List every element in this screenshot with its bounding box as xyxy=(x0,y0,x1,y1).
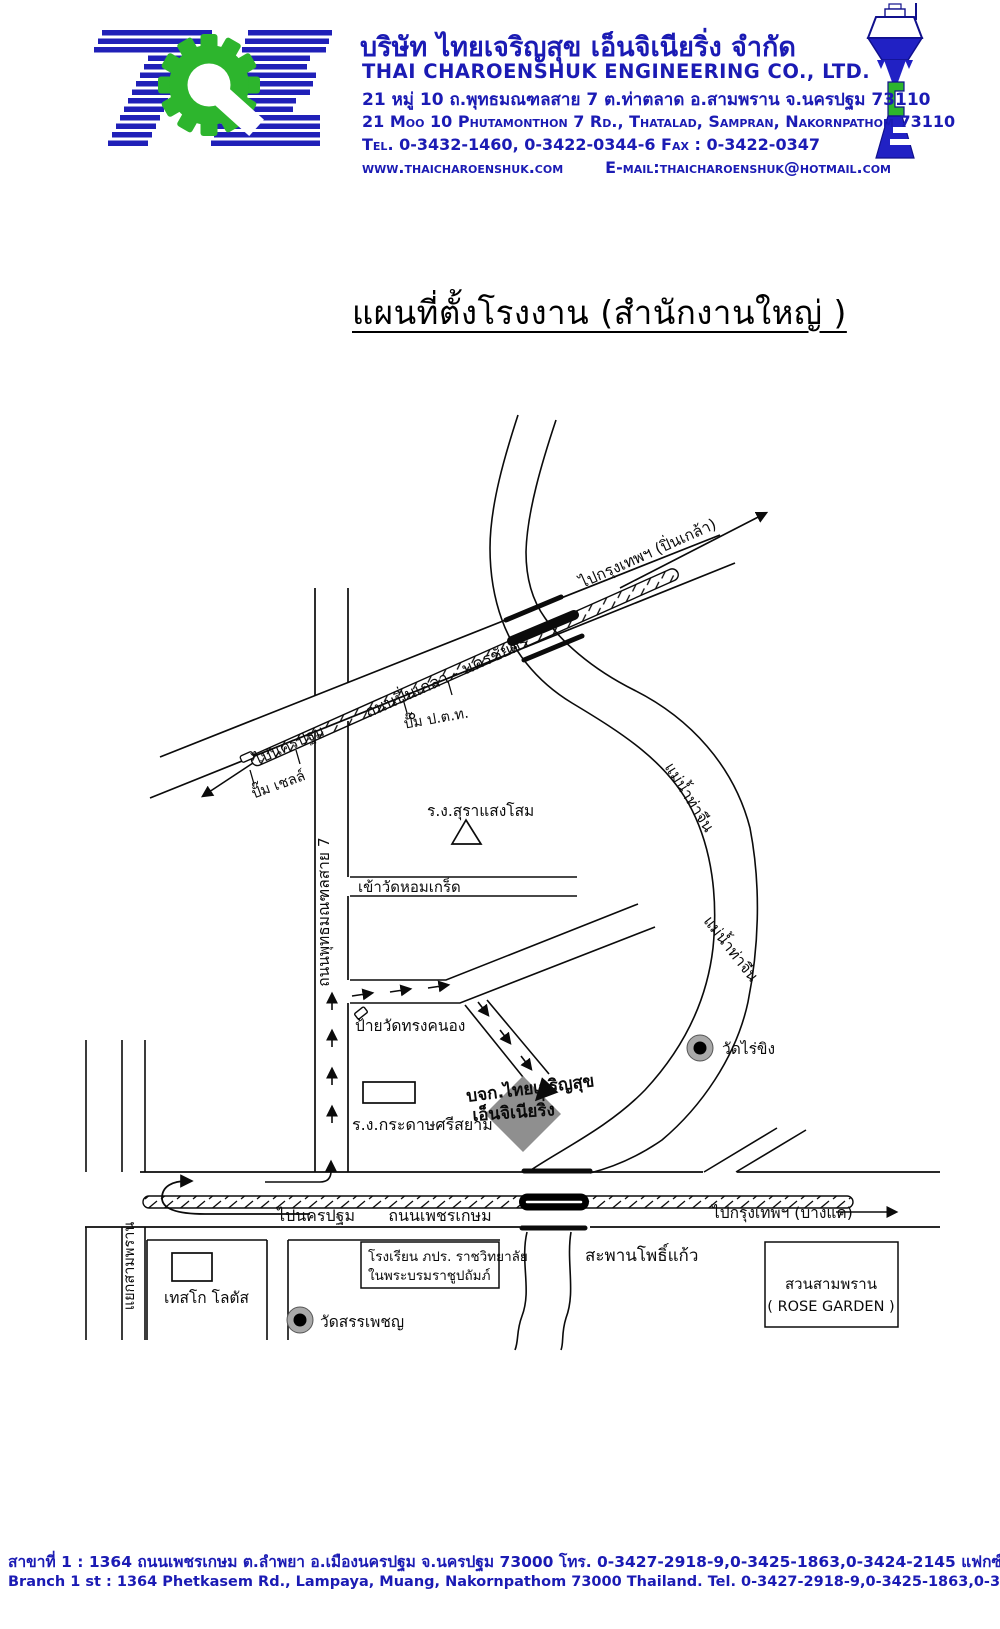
label-rose-garden-en: ( ROSE GARDEN ) xyxy=(767,1299,894,1315)
landmark-triangle-icon xyxy=(452,820,481,844)
label-shell-station: ปั๊ม เชลล์ xyxy=(248,764,307,802)
label-sangsom-distillery: ร.ง.สุราแสงโสม xyxy=(427,802,534,821)
label-ptt-station: ปั๊ม ป.ต.ท. xyxy=(402,702,470,733)
label-river-thachin-lower: แม่น้ำท่าจีน xyxy=(700,911,765,986)
footer-branch-en: Branch 1 st : 1364 Phetkasem Rd., Lampay… xyxy=(8,1574,1000,1590)
side-streets xyxy=(86,1040,500,1340)
label-wat-sanphet: วัดสรรเพชญ xyxy=(320,1313,404,1331)
location-map: แม่น้ำท่าจีน แม่น้ำท่าจีน xyxy=(0,380,1000,1365)
label-rose-garden-th: สวนสามพราน xyxy=(785,1275,877,1293)
label-wat-raikhing: วัดไร่ขิง xyxy=(722,1040,775,1058)
wat-sanphet-marker-icon xyxy=(287,1307,313,1333)
label-tesco-lotus: เทสโก โลตัส xyxy=(164,1289,250,1307)
document-page: บริษัท ไทยเจริญสุข เอ็นจิเนียริ่ง จำกัด … xyxy=(0,0,1000,1629)
tesco-lotus-marker xyxy=(172,1253,212,1281)
footer-branch-th: สาขาที่ 1 : 1364 ถนนเพชรเกษม ต.ลำพยา อ.เ… xyxy=(8,1549,1000,1574)
company-address-th: 21 หมู่ 10 ถ.พุทธมณฑลสาย 7 ต.ท่าตลาด อ.ส… xyxy=(362,86,931,113)
company-tel-fax: Tel. 0-3432-1460, 0-3422-0344-6 Fax : 0-… xyxy=(362,135,820,154)
label-paper-factory: ร.ง.กระดาษศรีสยาม xyxy=(352,1115,493,1134)
paper-factory-marker xyxy=(363,1082,415,1103)
water-tower-icon xyxy=(860,0,932,170)
company-web-email: www.thaicharoenshuk.comE-mail:thaicharoe… xyxy=(362,158,891,177)
company-name-en: THAI CHAROENSHUK ENGINEERING CO., LTD. xyxy=(362,60,870,83)
slip-road xyxy=(704,1128,806,1172)
label-river-thachin-upper: แม่น้ำท่าจีน xyxy=(661,758,720,836)
company-address-en: 21 Moo 10 Phutamonthon 7 Rd., Thatalad, … xyxy=(362,112,955,131)
pinklao-road xyxy=(150,513,766,798)
phutthamonthon7-road xyxy=(265,588,348,1182)
route-arrows-to-factory xyxy=(478,1002,531,1069)
label-phokaew-bridge: สะพานโพธิ์แก้ว xyxy=(585,1243,698,1266)
label-sampran-junction: แยกสามพราน xyxy=(122,1222,138,1311)
label-wat-songkhanong: ป้ายวัดทรงคนอง xyxy=(355,1017,465,1035)
wat-raikhing-marker-icon xyxy=(687,1035,713,1061)
factory-access-road xyxy=(350,904,655,1082)
phokaew-bridge xyxy=(519,1171,590,1228)
label-to-nakhonpathom-lower: ไปนครปฐม xyxy=(275,1206,355,1225)
company-email: E-mail:thaicharoenshuk@hotmail.com xyxy=(605,158,891,177)
label-to-bangkok-bangkae: ไปกรุงเทพฯ (บางแค) xyxy=(710,1204,853,1223)
page-title: แผนที่ตั้งโรงงาน (สำนักงานใหญ่ ) xyxy=(352,286,847,339)
label-road-phutthamonthon7: ถนนพุทธมณฑลสาย 7 xyxy=(315,837,334,986)
company-website: www.thaicharoenshuk.com xyxy=(362,158,563,177)
route-arrows-east xyxy=(352,985,448,996)
company-logo xyxy=(90,22,345,157)
arrow-to-nakhonpathom xyxy=(203,763,253,796)
label-school-line2: ในพระบรมราชูปถัมภ์ xyxy=(368,1267,491,1284)
rose-garden-box: สวนสามพราน ( ROSE GARDEN ) xyxy=(765,1242,898,1327)
label-wat-homkret: เข้าวัดหอมเกร็ด xyxy=(358,877,461,896)
label-road-phetkasem: ถนนเพชรเกษม xyxy=(388,1206,491,1225)
label-school-line1: โรงเรียน ภปร. ราชวิทยาลัย xyxy=(368,1248,528,1265)
school-box: โรงเรียน ภปร. ราชวิทยาลัย ในพระบรมราชูปถ… xyxy=(361,1242,528,1288)
